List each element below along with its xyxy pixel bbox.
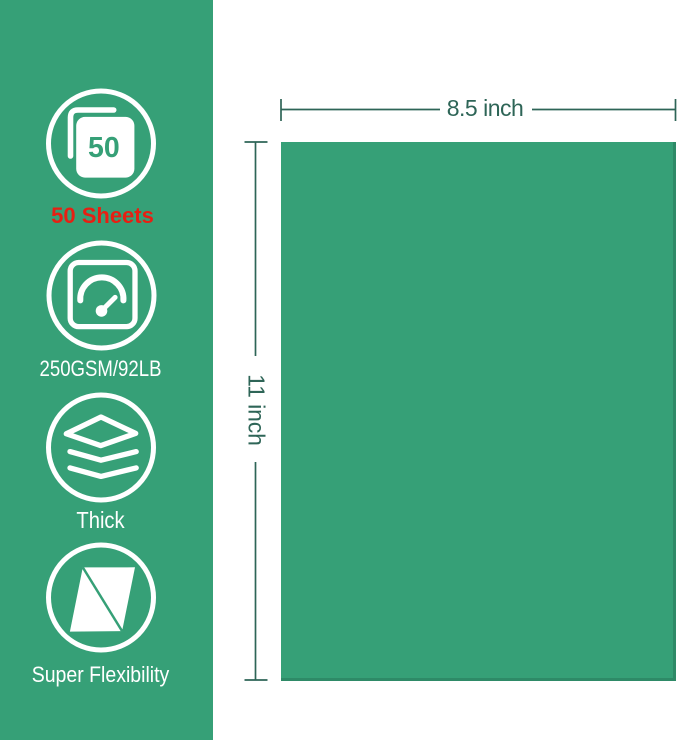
svg-text:50: 50: [88, 132, 120, 164]
